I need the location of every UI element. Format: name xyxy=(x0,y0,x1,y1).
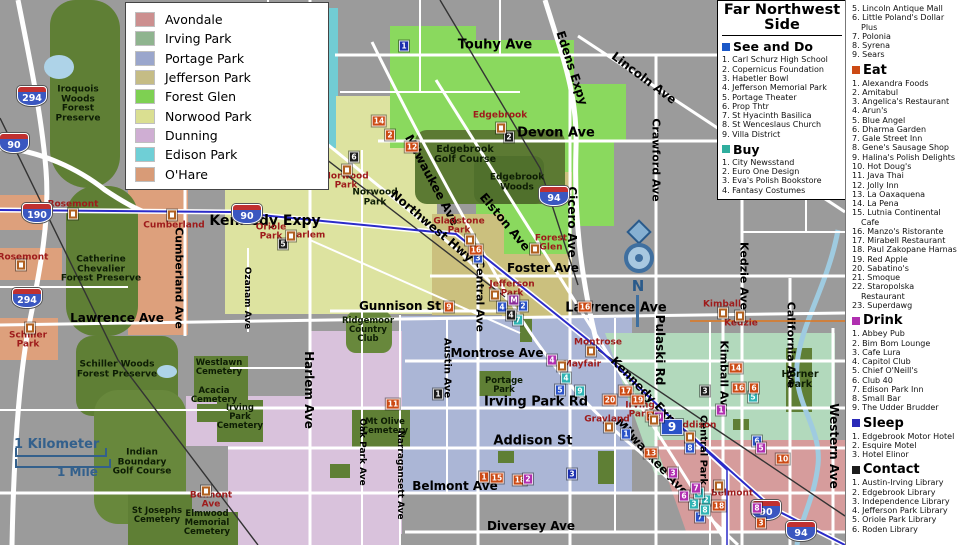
poi-item: 6. Club 40 xyxy=(852,376,958,385)
poi-item: 1. Alexandra Foods xyxy=(852,79,958,88)
poi-item: 4. Jefferson Park Library xyxy=(852,506,958,515)
legend-swatch xyxy=(136,13,154,26)
train-window-icon xyxy=(721,311,725,316)
station-marker xyxy=(604,422,614,433)
section-label: Drink xyxy=(863,313,903,328)
compass-rose: N xyxy=(620,215,656,335)
poi-marker-dr: 5 xyxy=(756,443,766,454)
station-label: BelmontAve xyxy=(190,492,232,511)
poi-marker-dr: 1 xyxy=(716,405,726,416)
poi-item: 1. Edgebrook Motor Hotel xyxy=(852,432,958,441)
train-window-icon xyxy=(717,484,721,489)
station-marker xyxy=(649,415,659,426)
poi-item: 5. Chief O'Neill's xyxy=(852,366,958,375)
legend-label: Forest Glen xyxy=(165,89,236,104)
interstate-shield: 294 xyxy=(17,86,47,106)
station-marker xyxy=(201,486,211,497)
station-label: GladstonePark xyxy=(433,218,484,237)
train-window-icon xyxy=(345,168,349,173)
station-label: SchillerPark xyxy=(9,332,47,351)
section-bullet-icon xyxy=(852,317,860,325)
station-label: Mayfair xyxy=(563,360,601,369)
poi-list-contact: 1. Austin-Irving Library2. Edgebrook Lib… xyxy=(852,478,958,534)
poi-item: 9. Sears xyxy=(852,50,958,59)
scale-km-bar xyxy=(15,448,107,457)
poi-marker-eat: 3 xyxy=(756,518,766,529)
poi-item: 1. City Newsstand xyxy=(722,158,842,167)
poi-item: 2. Copernicus Foundation xyxy=(722,65,842,74)
compass-needle-icon xyxy=(626,219,651,244)
poi-marker-sd: 1 xyxy=(621,429,631,440)
train-window-icon xyxy=(204,489,208,494)
legend-item: Dunning xyxy=(136,126,318,145)
station-marker xyxy=(286,231,296,242)
street-label: Cumberland Ave xyxy=(173,227,186,329)
poi-marker-eat: 18 xyxy=(712,501,726,512)
station-marker xyxy=(490,290,500,301)
legend-label: Irving Park xyxy=(165,31,232,46)
poi-item: 7. Polonia xyxy=(852,32,958,41)
station-marker xyxy=(714,481,724,492)
section-bullet-icon xyxy=(852,66,860,74)
station-marker xyxy=(68,209,78,220)
street-label: Gunnison St xyxy=(359,299,441,313)
poi-item: 10. Hot Doug's xyxy=(852,162,958,171)
poi-marker-eat: 13 xyxy=(644,448,658,459)
poi-marker-eat: 2 xyxy=(385,130,395,141)
poi-item: 11. Java Thai xyxy=(852,171,958,180)
legend-label: Norwood Park xyxy=(165,109,252,124)
train-window-icon xyxy=(170,213,174,218)
station-marker xyxy=(735,311,745,322)
poi-item: 15. Lutnia Continental Cafe xyxy=(852,208,958,227)
poi-marker-sd: 5 xyxy=(555,385,565,396)
poi-item: 20. Sabatino's xyxy=(852,264,958,273)
poi-list-drink: 1. Abbey Pub2. Bim Bom Lounge3. Cafe Lur… xyxy=(852,329,958,412)
poi-item: 5. Portage Theater xyxy=(722,93,842,102)
poi-item: 4. Capitol Club xyxy=(852,357,958,366)
train-window-icon xyxy=(493,293,497,298)
street-label: Lawrence Ave xyxy=(70,311,164,325)
poi-marker-dr: 6 xyxy=(679,491,689,502)
section-header-eat: Eat xyxy=(852,63,958,78)
listings-column: 5. Lincoln Antique Mall6. Little Poland'… xyxy=(845,0,960,545)
poi-item: 23. Superdawg xyxy=(852,301,958,310)
poi-marker-dr: 7 xyxy=(691,483,701,494)
street-label: Addison St xyxy=(493,434,572,449)
train-window-icon xyxy=(738,314,742,319)
interstate-shield: 190 xyxy=(22,203,52,223)
area-label: ElmwoodMemorialCemetery xyxy=(184,510,230,538)
street-label: Devon Ave xyxy=(517,126,595,141)
station-marker xyxy=(496,123,506,134)
legend-label: Portage Park xyxy=(165,51,244,66)
poi-item: 8. Small Bar xyxy=(852,394,958,403)
poi-item: 1. Carl Schurz High School xyxy=(722,55,842,64)
poi-marker-buy: 4 xyxy=(561,373,571,384)
poi-item: 8. Gene's Sausage Shop xyxy=(852,143,958,152)
section-header-contact: Contact xyxy=(852,462,958,477)
poi-item: 17. Mirabell Restaurant xyxy=(852,236,958,245)
poi-item: 16. Manzo's Ristorante xyxy=(852,227,958,236)
station-label: Montrose xyxy=(574,338,622,347)
poi-marker-buy: 9 xyxy=(575,386,585,397)
legend-swatch xyxy=(136,148,154,161)
station-marker xyxy=(530,244,540,255)
street-label: Foster Ave xyxy=(507,261,579,275)
poi-marker-eat: 6 xyxy=(749,383,759,394)
poi-marker-eat: 14 xyxy=(729,363,743,374)
poi-item: 4. Jefferson Memorial Park xyxy=(722,83,842,92)
interstate-shield: 90 xyxy=(0,133,29,153)
legend-item: Edison Park xyxy=(136,145,318,164)
poi-marker-ct: 6 xyxy=(349,152,359,163)
poi-marker-dr: 3 xyxy=(668,468,678,479)
train-window-icon xyxy=(289,234,293,239)
poi-marker-eat: 15 xyxy=(490,473,504,484)
poi-item: 2. Euro One Design xyxy=(722,167,842,176)
poi-item: 2. Amitabul xyxy=(852,88,958,97)
infobox: Far Northwest Side See and Do1. Carl Sch… xyxy=(717,0,846,200)
section-bullet-icon xyxy=(722,145,730,153)
poi-marker-sd: 9 xyxy=(661,419,683,435)
legend-item: O'Hare xyxy=(136,164,318,183)
station-marker xyxy=(586,346,596,357)
legend: AvondaleIrving ParkPortage ParkJefferson… xyxy=(125,2,329,190)
station-label: Cumberland xyxy=(143,221,204,230)
poi-marker-sl: 3 xyxy=(567,469,577,480)
legend-label: Edison Park xyxy=(165,147,237,162)
train-window-icon xyxy=(560,364,564,369)
train-window-icon xyxy=(607,425,611,430)
legend-swatch xyxy=(136,129,154,142)
section-header-see-do: See and Do xyxy=(722,39,842,54)
poi-item: 1. Austin-Irving Library xyxy=(852,478,958,487)
compass-north-label: N xyxy=(620,277,656,295)
station-marker xyxy=(342,165,352,176)
poi-marker-dr: 4 xyxy=(547,355,557,366)
area-label: St JosephsCemetery xyxy=(132,507,182,525)
poi-marker-eat: 16 xyxy=(732,383,746,394)
legend-swatch xyxy=(136,110,154,123)
poi-marker-eat: 19 xyxy=(631,395,645,406)
train-window-icon xyxy=(19,263,23,268)
legend-label: O'Hare xyxy=(165,167,208,182)
station-marker xyxy=(718,308,728,319)
legend-item: Jefferson Park xyxy=(136,68,318,87)
poi-item: 9. Villa District xyxy=(722,130,842,139)
poi-marker-sd: 8 xyxy=(685,443,695,454)
train-window-icon xyxy=(589,349,593,354)
legend-item: Avondale xyxy=(136,10,318,29)
street-label: Montrose Ave xyxy=(451,346,544,360)
section-label: Contact xyxy=(863,462,920,477)
interstate-shield: 94 xyxy=(539,186,569,206)
poi-item: 4. Arun's xyxy=(852,106,958,115)
poi-item: 3. Angelica's Restaurant xyxy=(852,97,958,106)
poi-marker-eat: 14 xyxy=(372,116,386,127)
poi-item: 13. La Oaxaquena xyxy=(852,190,958,199)
poi-marker-eat: 16 xyxy=(578,302,592,313)
poi-list-buy: 1. City Newsstand2. Euro One Design3. Ev… xyxy=(722,158,842,195)
station-marker xyxy=(16,260,26,271)
poi-item: 3. Hotel Elinor xyxy=(852,450,958,459)
street-label: California Ave xyxy=(785,302,798,388)
poi-item: 9. Halina's Polish Delights xyxy=(852,153,958,162)
legend-label: Jefferson Park xyxy=(165,70,251,85)
poi-item: 5. Blue Angel xyxy=(852,116,958,125)
interstate-shield: 90 xyxy=(232,204,262,224)
legend-swatch xyxy=(136,52,154,65)
compass-circle-icon xyxy=(624,243,654,273)
area-label: PortagePark xyxy=(485,377,523,395)
poi-item: 3. Habetler Bowl xyxy=(722,74,842,83)
interstate-shield: 294 xyxy=(12,288,42,308)
street-label: Kimball Ave xyxy=(718,340,731,413)
street-label: Touhy Ave xyxy=(458,38,532,53)
poi-item: 9. The Udder Brudder xyxy=(852,403,958,412)
poi-marker-sl: 1 xyxy=(399,41,409,52)
poi-marker-buy: 8 xyxy=(700,505,710,516)
train-window-icon xyxy=(28,326,32,331)
poi-item: 5. Lincoln Antique Mall xyxy=(852,4,958,13)
area-label: WestlawnCemetery xyxy=(196,359,243,377)
area-label: IndianBoundaryGolf Course xyxy=(113,448,172,477)
section-bullet-icon xyxy=(722,43,730,51)
page-title: Far Northwest Side xyxy=(722,3,842,36)
station-marker xyxy=(465,235,475,246)
section-label: Eat xyxy=(863,63,887,78)
poi-item: 6. Roden Library xyxy=(852,525,958,534)
poi-list-see-do: 1. Carl Schurz High School2. Copernicus … xyxy=(722,55,842,138)
area-label: IrvingParkCemetery xyxy=(217,404,263,432)
street-label: Diversey Ave xyxy=(487,519,575,533)
legend-swatch xyxy=(136,168,154,181)
station-marker xyxy=(167,210,177,221)
poi-item: 21. Smoque xyxy=(852,273,958,282)
poi-item: 7. Edison Park Inn xyxy=(852,385,958,394)
poi-marker-dr: 2 xyxy=(523,474,533,485)
legend-label: Dunning xyxy=(165,128,218,143)
poi-item: 8. St Wenceslaus Church xyxy=(722,120,842,129)
far-northwest-side-map: IroquoisWoodsForestPreserveCatherineChev… xyxy=(0,0,960,545)
station-label: Edgebrook xyxy=(473,111,527,120)
poi-item: 14. La Pena xyxy=(852,199,958,208)
train-window-icon xyxy=(499,126,503,131)
area-label: Schiller WoodsForest Preserve xyxy=(77,360,157,379)
legend-swatch xyxy=(136,71,154,84)
station-marker xyxy=(685,432,695,443)
poi-marker-eat: 1 xyxy=(479,472,489,483)
poi-marker-eat: 16 xyxy=(469,245,483,256)
section-header-buy: Buy xyxy=(722,142,842,157)
poi-item: 22. Staropolska Restaurant xyxy=(852,282,958,301)
section-bullet-icon xyxy=(852,419,860,427)
poi-item: 3. Cafe Lura xyxy=(852,348,958,357)
area-label: IroquoisWoodsForestPreserve xyxy=(55,86,100,125)
poi-list-sleep: 1. Edgebrook Motor Hotel2. Esquire Motel… xyxy=(852,432,958,460)
section-label: See and Do xyxy=(733,39,813,54)
street-label: Irving Park Rd xyxy=(484,395,588,410)
poi-item: 2. Edgebrook Library xyxy=(852,488,958,497)
poi-item: 6. Prop Thtr xyxy=(722,102,842,111)
poi-marker-eat: 11 xyxy=(386,399,400,410)
poi-item: 2. Bim Bom Lounge xyxy=(852,339,958,348)
poi-item: 7. Gale Street Inn xyxy=(852,134,958,143)
poi-item: 4. Fantasy Costumes xyxy=(722,186,842,195)
poi-list-eat: 1. Alexandra Foods2. Amitabul3. Angelica… xyxy=(852,79,958,311)
poi-marker-buy: 3 xyxy=(689,499,699,510)
street-label: Harlem Ave xyxy=(302,351,316,429)
poi-item: 2. Esquire Motel xyxy=(852,441,958,450)
section-header-drink: Drink xyxy=(852,313,958,328)
station-marker xyxy=(557,361,567,372)
poi-item: 19. Red Apple xyxy=(852,255,958,264)
compass-tail xyxy=(636,295,639,327)
poi-marker-dr: 8 xyxy=(752,503,762,514)
street-label: Crawford Ave xyxy=(650,118,663,201)
train-window-icon xyxy=(468,238,472,243)
legend-label: Avondale xyxy=(165,12,223,27)
poi-item: 6. Little Poland's Dollar Plus xyxy=(852,13,958,32)
train-window-icon xyxy=(688,435,692,440)
section-label: Sleep xyxy=(863,416,904,431)
area-label: EdgebrookGolf Course xyxy=(434,145,496,166)
poi-item: 12. Jolly Inn xyxy=(852,181,958,190)
legend-swatch xyxy=(136,90,154,103)
poi-marker-eat: 12 xyxy=(405,142,419,153)
area-label: RidgemoorCountryClub xyxy=(342,317,394,345)
street-label: Austin Ave xyxy=(442,338,453,398)
station-marker xyxy=(25,323,35,334)
poi-item: 5. Oriole Park Library xyxy=(852,515,958,524)
train-window-icon xyxy=(71,212,75,217)
section-bullet-icon xyxy=(852,466,860,474)
poi-marker-ct: 4 xyxy=(506,310,516,321)
poi-item: 8. Syrena xyxy=(852,41,958,50)
legend-swatch xyxy=(136,32,154,45)
poi-item: 18. Paul Zakopane Harnas xyxy=(852,245,958,254)
poi-item: 3. Eva's Polish Bookstore xyxy=(722,176,842,185)
legend-item: Irving Park xyxy=(136,29,318,48)
poi-marker-ct: 3 xyxy=(700,386,710,397)
legend-item: Portage Park xyxy=(136,49,318,68)
poi-marker-eat: 10 xyxy=(776,454,790,465)
poi-marker-eat: 20 xyxy=(603,395,617,406)
train-window-icon xyxy=(652,418,656,423)
interstate-shield: 94 xyxy=(786,521,816,541)
area-label: CatherineChevalierForest Preserve xyxy=(61,255,141,284)
poi-marker-ct: 1 xyxy=(433,389,443,400)
scale-mile-label: 1 Mile xyxy=(57,465,98,479)
poi-item: 1. Abbey Pub xyxy=(852,329,958,338)
legend-item: Forest Glen xyxy=(136,87,318,106)
legend-item: Norwood Park xyxy=(136,106,318,125)
poi-item: 7. St Hyacinth Basilica xyxy=(722,111,842,120)
poi-list-buy-continued: 5. Lincoln Antique Mall6. Little Poland'… xyxy=(852,4,958,60)
poi-marker-eat: 9 xyxy=(444,302,454,313)
street-label: Central Ave xyxy=(474,260,487,332)
street-label: Ozanam Ave xyxy=(242,267,252,330)
poi-item: 3. Independence Library xyxy=(852,497,958,506)
street-label: Oak Park Ave xyxy=(357,418,367,485)
street-label: Western Ave xyxy=(827,403,841,488)
street-label: Narragansett Ave xyxy=(395,430,405,519)
section-label: Buy xyxy=(733,142,760,157)
area-label: EdgebrookWoods xyxy=(490,173,544,192)
section-header-sleep: Sleep xyxy=(852,416,958,431)
metra-marker: M xyxy=(508,295,519,306)
poi-item: 6. Dharma Garden xyxy=(852,125,958,134)
train-window-icon xyxy=(533,247,537,252)
